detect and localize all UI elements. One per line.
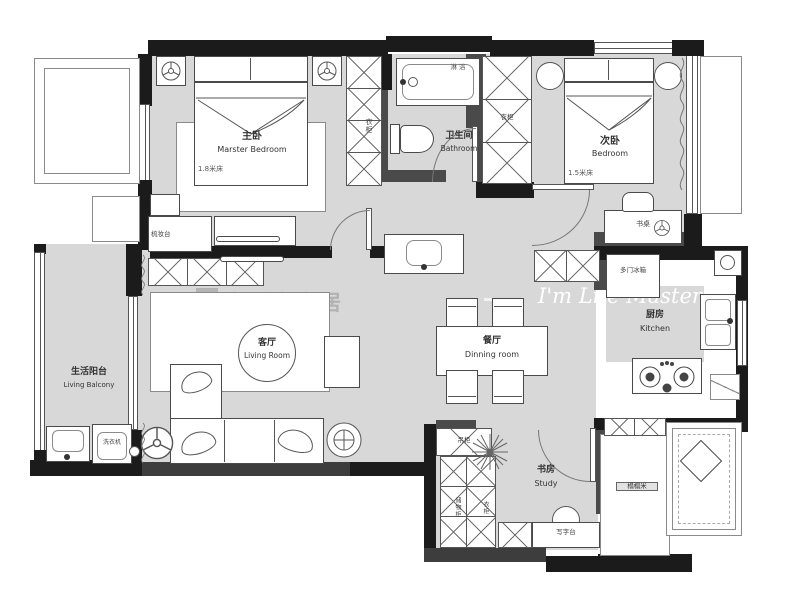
dresser-stool bbox=[150, 194, 180, 216]
label-desk-bedroom2: 书桌 bbox=[616, 221, 670, 229]
wardrobe-cell bbox=[346, 56, 382, 89]
master-bed-headboard bbox=[194, 56, 308, 82]
shoe-cabinet-cell bbox=[534, 250, 567, 282]
bedroom2-window-ledge bbox=[700, 56, 742, 214]
wall-segment bbox=[684, 214, 702, 250]
label-bedroom2-en: Bedroom bbox=[570, 150, 650, 159]
shoe-cabinet-cell bbox=[566, 250, 600, 282]
label-washing-machine: 洗衣机 bbox=[93, 440, 131, 447]
bay-window-ledge-inner bbox=[44, 68, 130, 174]
label-bedroom2-cn: 次卧 bbox=[570, 136, 650, 147]
label-dining-cn: 餐厅 bbox=[452, 337, 532, 347]
side-table-icon bbox=[326, 422, 362, 458]
watermark: 生活家家居 I'm Life Master bbox=[0, 284, 800, 314]
utility-valve bbox=[129, 446, 140, 457]
sofa-seat-divider bbox=[224, 420, 225, 462]
desk-chair bbox=[622, 192, 654, 212]
label-study-cn: 书房 bbox=[516, 466, 576, 476]
headboard-divider bbox=[250, 58, 251, 80]
window-balcony-left bbox=[34, 252, 45, 452]
toilet-tank bbox=[390, 124, 400, 154]
balcony-sink-basin bbox=[52, 430, 84, 452]
label-bedroom2-bedsize: 1.5米床 bbox=[568, 170, 628, 178]
label-bathroom-cn: 卫生间 bbox=[428, 132, 490, 142]
label-study-en: Study bbox=[516, 480, 576, 489]
wall-segment bbox=[476, 182, 534, 198]
fridge bbox=[606, 254, 660, 298]
tv-cabinet-living bbox=[148, 258, 264, 286]
label-wardrobe-study: 衣柜 bbox=[474, 486, 488, 530]
wardrobe-cell bbox=[346, 152, 382, 186]
label-fridge: 多门冰箱 bbox=[608, 267, 658, 274]
ceiling-lamp-icon bbox=[159, 59, 183, 83]
vanity-faucet bbox=[421, 264, 427, 270]
tv-master bbox=[216, 236, 280, 242]
wall-segment bbox=[424, 548, 546, 562]
tatami-room bbox=[600, 434, 670, 556]
sink-basin bbox=[705, 324, 731, 346]
label-balcony-cn: 生活阳台 bbox=[52, 368, 126, 378]
wall-segment bbox=[684, 40, 704, 56]
label-writing-desk: 写字台 bbox=[534, 529, 598, 536]
window-kitchen-right bbox=[737, 300, 747, 366]
chair-back bbox=[448, 300, 476, 307]
slider-door-balcony bbox=[128, 296, 138, 430]
cabinet-cell bbox=[187, 258, 227, 286]
cabinet-cell bbox=[226, 258, 264, 286]
wardrobe-cell bbox=[482, 56, 532, 100]
bathtub-drain bbox=[408, 77, 418, 87]
study-door-leaf bbox=[590, 428, 596, 482]
sink-faucet bbox=[727, 318, 733, 324]
label-master-cn: 主卧 bbox=[192, 131, 312, 142]
label-dining-en: Dinning room bbox=[442, 351, 542, 360]
label-hanging-cabinet: 吊柜 bbox=[438, 437, 490, 444]
label-wardrobe-hall: 衣柜 bbox=[486, 114, 528, 121]
wall-segment bbox=[138, 54, 152, 106]
label-living-cn: 客厅 bbox=[238, 339, 296, 349]
label-living-en: Living Room bbox=[232, 352, 302, 360]
label-storage-study: 储物柜 bbox=[446, 482, 460, 532]
curtain-squiggle bbox=[138, 252, 148, 298]
label-dresser: 梳妆台 bbox=[148, 231, 199, 238]
label-master-bedsize: 1.8米床 bbox=[198, 166, 258, 174]
balcony-sink-faucet bbox=[64, 454, 70, 460]
label-balcony-en: Living Balcony bbox=[47, 382, 131, 390]
label-kitchen-cn: 厨房 bbox=[615, 311, 695, 321]
nightstand-round bbox=[536, 62, 564, 90]
hood-vent bbox=[720, 255, 735, 270]
chair-back bbox=[448, 396, 476, 403]
label-kitchen-en: Kitchen bbox=[615, 325, 695, 334]
sofa-seat-divider bbox=[274, 420, 275, 462]
floor-plan: 生活家家居 I'm Life Master bbox=[0, 0, 800, 616]
stove-burners bbox=[632, 358, 702, 394]
headboard-divider bbox=[608, 60, 609, 80]
bed2-headboard bbox=[564, 58, 654, 82]
label-bathroom-en: Bathroom bbox=[428, 145, 490, 153]
tv-living bbox=[220, 256, 284, 262]
wall-segment bbox=[142, 462, 350, 476]
vanity-basin bbox=[406, 240, 442, 266]
ceiling-lamp-icon bbox=[315, 59, 339, 83]
label-master-en: Marster Bedroom bbox=[192, 146, 312, 155]
wall-segment bbox=[490, 40, 594, 56]
chair-back bbox=[494, 396, 522, 403]
kitchen-balcony-door bbox=[710, 374, 740, 400]
curtain-squiggle bbox=[138, 420, 148, 466]
tatami-cabinet-cell bbox=[634, 418, 666, 436]
window-top-bedroom2 bbox=[594, 42, 674, 54]
wall-segment bbox=[424, 424, 436, 550]
wall-segment bbox=[598, 554, 692, 572]
ac-ledge bbox=[92, 196, 140, 242]
coffee-table bbox=[324, 336, 360, 388]
bathtub-faucet bbox=[400, 79, 406, 85]
wall-segment bbox=[386, 36, 492, 52]
desk-drawer bbox=[498, 522, 532, 548]
label-wardrobe-master: 衣柜 bbox=[356, 96, 372, 156]
label-tatami: 榻榻米 bbox=[616, 482, 658, 491]
tatami-cabinet-cell bbox=[604, 418, 635, 436]
wall-segment bbox=[148, 40, 388, 56]
curtain-squiggle bbox=[676, 58, 688, 190]
cabinet-cell bbox=[148, 258, 188, 286]
window-master-left bbox=[139, 104, 150, 182]
label-shower: 淋浴 bbox=[442, 64, 476, 71]
chair-back bbox=[494, 300, 522, 307]
